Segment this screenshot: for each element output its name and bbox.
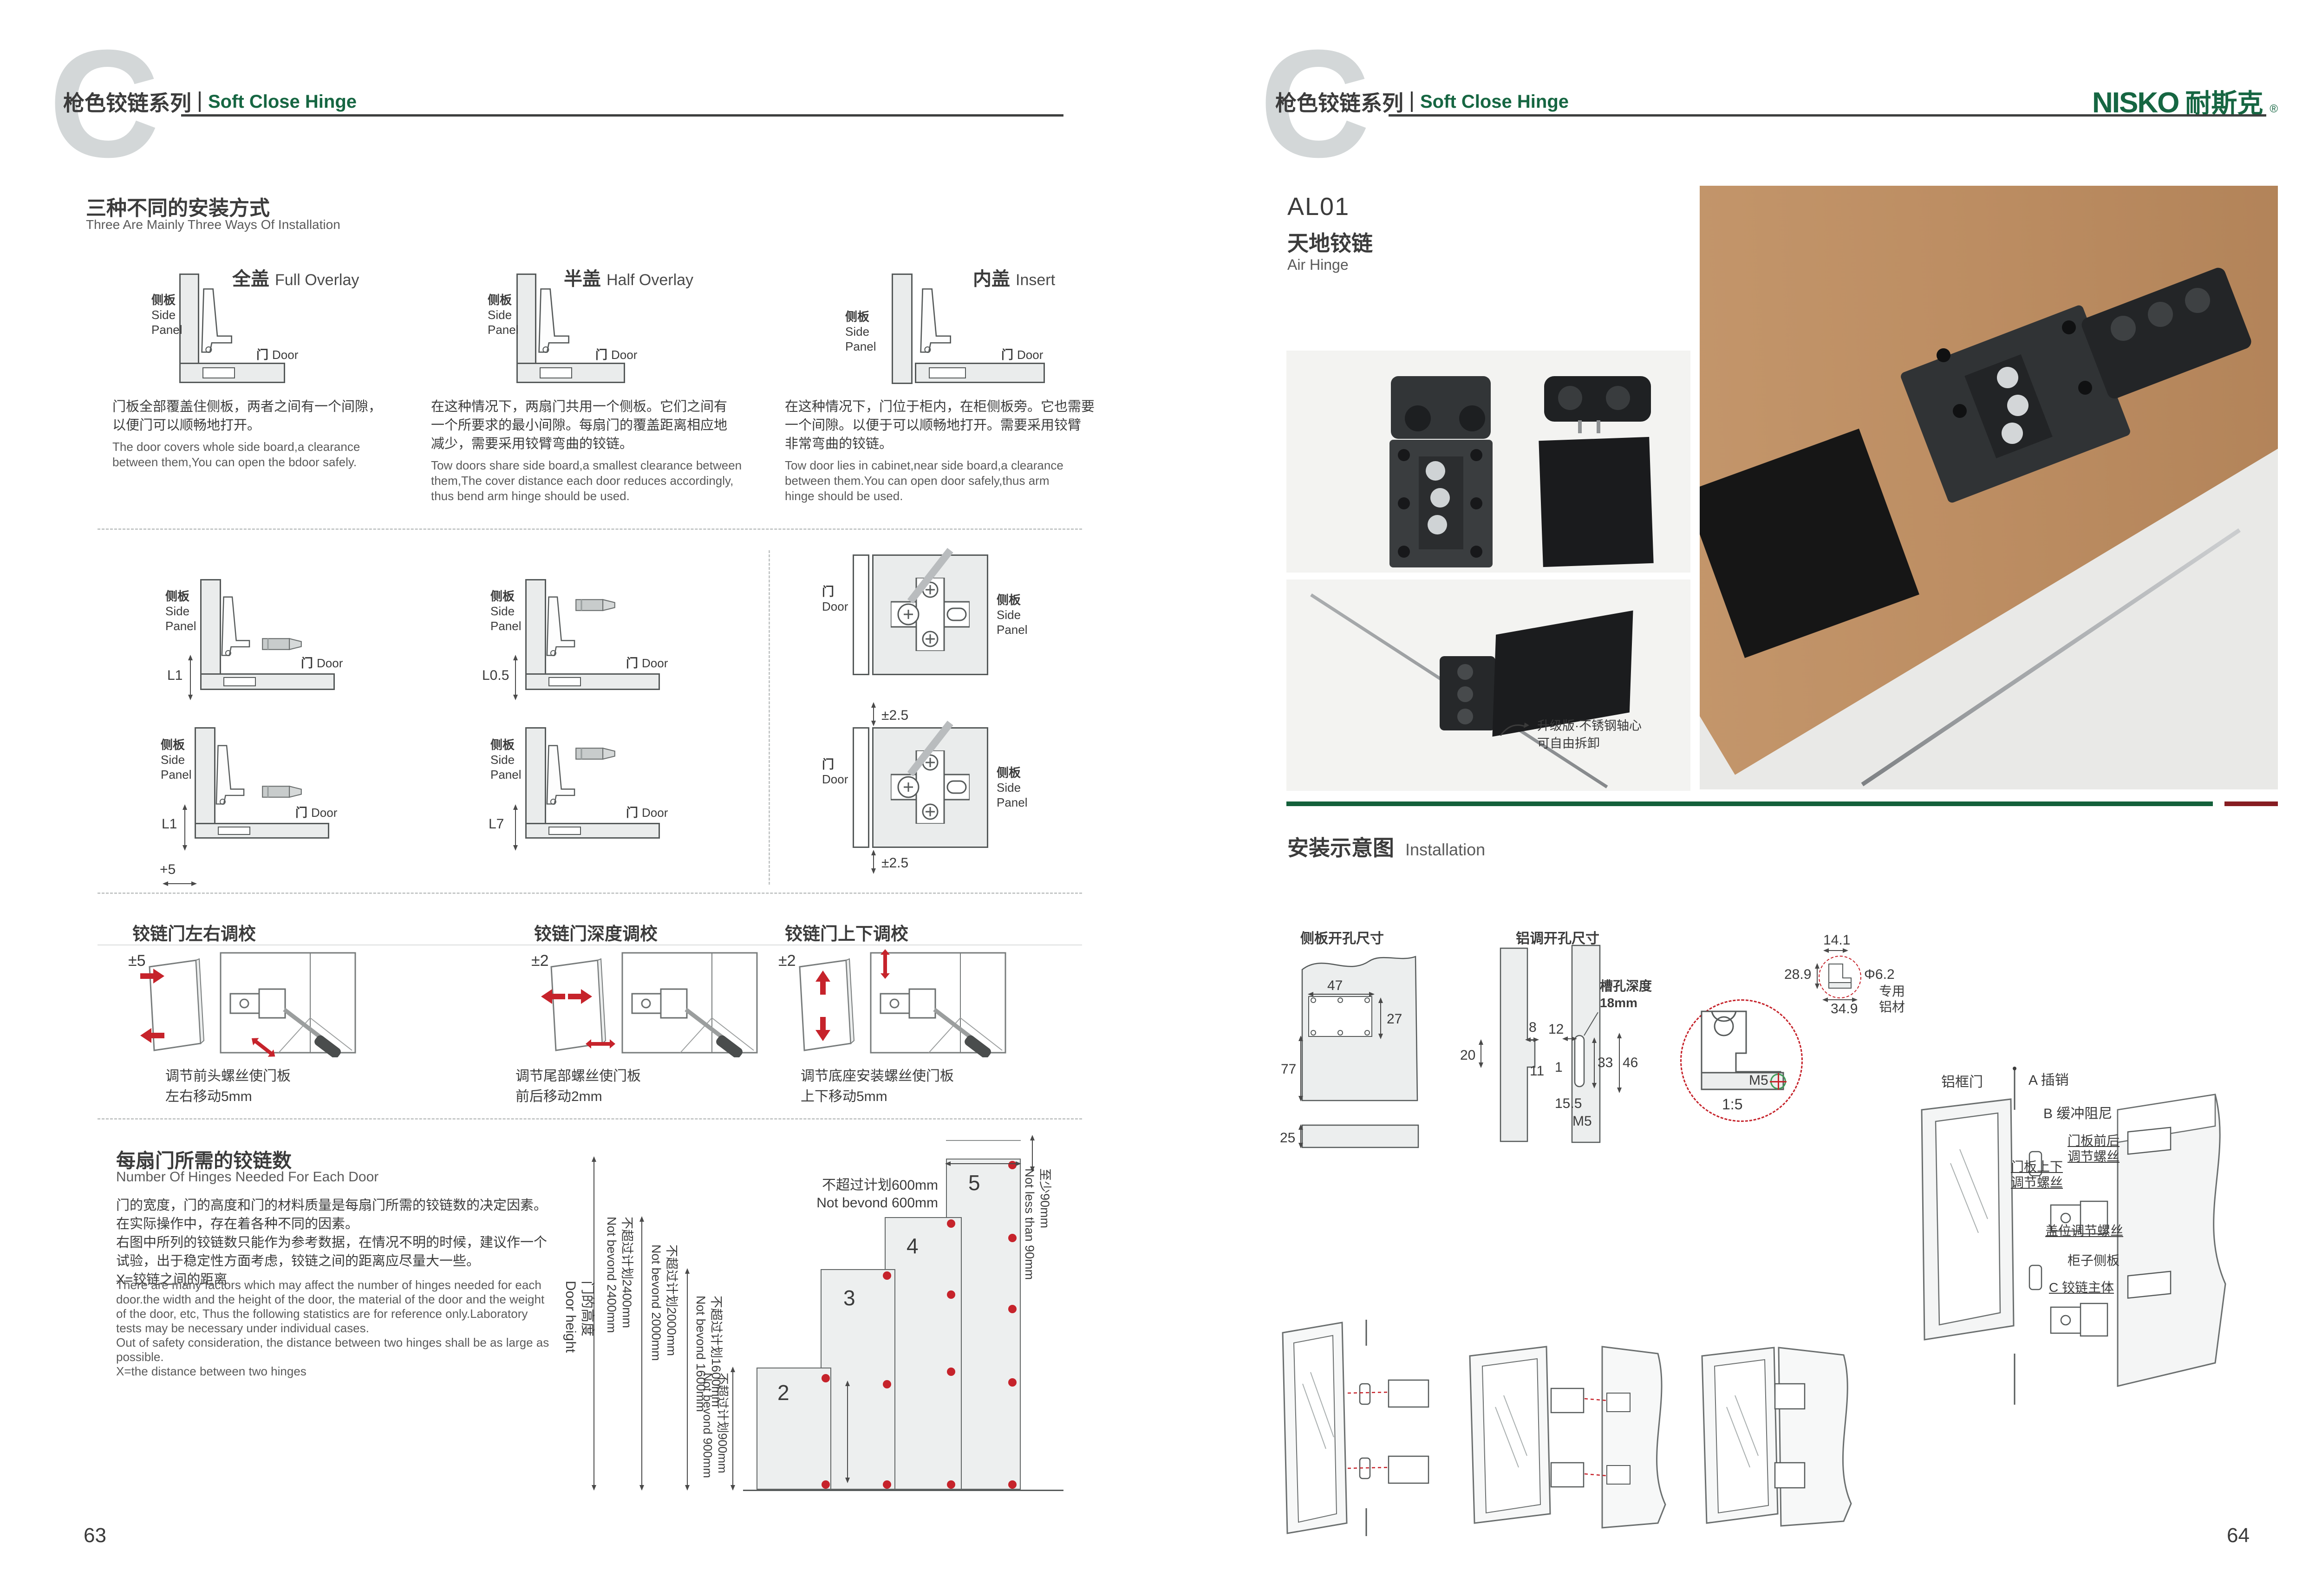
door-label: 门 Door <box>301 656 343 671</box>
dim-arrow-600 <box>946 1163 1020 1164</box>
adjustment-caption-0: 调节前头螺丝使门板 左右移动5mm <box>165 1066 291 1107</box>
hinge-dot <box>1008 1234 1017 1242</box>
door-en: Door <box>642 656 668 671</box>
door-label: 门 Door <box>295 805 337 820</box>
way-name-cn: 内盖 <box>973 264 1010 291</box>
alu-profile-label: 专用 铝材 <box>1879 984 1905 1015</box>
dim-46: 46 <box>1623 1055 1638 1071</box>
dim-8: 8 <box>1529 1020 1537 1036</box>
side-panel-label: 侧板 Side Panel <box>997 765 1028 810</box>
door-label: 门 Door <box>626 805 668 820</box>
door-label: 门 Door <box>626 656 668 671</box>
series-header-right: 枪色铰链系列 Soft Close Hinge <box>1275 86 1569 117</box>
callout-frame-door: 铝框门 <box>1941 1075 1983 1090</box>
side-panel-cn: 侧板 <box>488 293 519 307</box>
dim-pm25-bottom: ±2.5 <box>881 855 908 871</box>
door-cn: 门 <box>626 656 638 671</box>
clearance-dim-l7: L7 <box>489 816 504 832</box>
adjustment-title-1: 铰链门深度调校 <box>534 919 658 945</box>
dim-20: 20 <box>1460 1048 1475 1063</box>
side-panel-en1: Side <box>997 780 1028 795</box>
install-ways-title-cn: 三种不同的安装方式 <box>86 191 270 221</box>
way-desc-en-0: The door covers whole side board,a clear… <box>112 439 360 470</box>
series-header-left: 枪色铰链系列 Soft Close Hinge <box>63 86 357 117</box>
dim-arrow <box>1823 999 1857 1000</box>
callout-c-body: C 铰链主体 <box>2049 1280 2114 1296</box>
hinge-cup-notch <box>202 367 235 378</box>
hinge-count-desc-cn: 门的宽度，门的高度和门的材料质量是每扇门所需的铰链数的决定因素。 在实际操作中，… <box>116 1196 547 1289</box>
door-en: Door <box>1017 347 1043 362</box>
separator-dashed-1 <box>98 528 1082 530</box>
pivot-pin <box>1578 420 1582 433</box>
separator-dashed-vertical <box>769 550 770 885</box>
dim-m5-profile: M5 <box>1749 1073 1768 1088</box>
dim-27: 27 <box>1387 1011 1402 1027</box>
side-panel-label: 侧板 Side Panel <box>488 293 519 337</box>
dim-arrow <box>1594 1038 1595 1088</box>
door-en: Door <box>611 347 637 362</box>
header-divider-bar <box>199 91 201 112</box>
side-panel-en1: Side <box>488 307 519 322</box>
dim-m5: M5 <box>1572 1114 1592 1129</box>
pivot-pin <box>1597 420 1600 433</box>
side-panel-label: 侧板 Side Panel <box>161 737 192 782</box>
side-panel-en2: Panel <box>490 767 522 782</box>
way-name-en: Full Overlay <box>275 271 359 289</box>
adjustment-diagram-depth <box>541 948 764 1057</box>
side-panel-cn: 侧板 <box>490 589 522 604</box>
pivot-hole <box>1606 386 1630 410</box>
pivot-hole <box>1558 386 1582 410</box>
plate-hole <box>1470 546 1482 558</box>
adjustment-diagram-up-down <box>789 948 1012 1057</box>
door-label: 门 Door <box>256 347 298 362</box>
plate-hole <box>1470 449 1482 461</box>
side-panel-cn: 侧板 <box>161 737 192 752</box>
side-panel-en1: Side <box>845 324 876 339</box>
side-panel-label: 侧板 Side Panel <box>151 293 183 337</box>
way-desc-cn-2: 在这种情况下，门位于柜内，在柜侧板旁。它也需要 一个间隙。以便于可以顺畅地打开。… <box>785 397 1095 453</box>
dim-47: 47 <box>1327 978 1343 994</box>
side-panel-label: 侧板 Side Panel <box>997 593 1028 637</box>
bar-count-2: 2 <box>777 1380 789 1405</box>
axis-h2000: 不超过计划2000mm Not bevond 2000mm <box>648 1244 679 1361</box>
side-panel-label: 侧板 Side Panel <box>490 589 522 633</box>
hinge-dot <box>947 1290 955 1299</box>
clearance-dim-arrow <box>515 656 516 699</box>
hinge-cup-notch <box>223 677 256 686</box>
screw <box>1997 367 2018 388</box>
chart-top-tick <box>946 1140 1021 1141</box>
chart-bar-2 <box>757 1368 831 1490</box>
adjustment-caption-2: 调节底座安装螺丝使门板 上下移动5mm <box>801 1066 954 1107</box>
dim-33: 33 <box>1598 1055 1613 1071</box>
light-rule <box>98 945 1082 945</box>
callout-overlay-screw: 盖位调节螺丝 <box>2045 1223 2123 1239</box>
door-en: Door <box>822 599 848 614</box>
side-panel-en1: Side <box>490 604 522 619</box>
side-panel-en2: Panel <box>997 622 1028 637</box>
screw <box>1426 461 1445 481</box>
header-divider-bar <box>1411 91 1413 112</box>
chart-bar-4 <box>885 1217 962 1490</box>
installation-title: 安装示意图 Installation <box>1287 831 1485 862</box>
hinge-cross-section <box>542 584 577 671</box>
dim-pm25-top: ±2.5 <box>881 708 908 723</box>
door-shape <box>195 823 329 839</box>
door-en: Door <box>311 805 337 820</box>
door-en: Door <box>272 347 298 362</box>
m5-target-icon <box>1770 1074 1786 1089</box>
installation-title-en: Installation <box>1405 840 1485 860</box>
profile-mini-drawing <box>1827 962 1853 991</box>
side-panel-cn: 侧板 <box>165 589 196 604</box>
door-cn: 门 <box>822 757 848 772</box>
hinge-cup-notch <box>548 677 581 686</box>
dim-arrow <box>1563 1038 1576 1039</box>
screw-bit-icon <box>261 785 303 799</box>
header-rule-right <box>1389 114 2266 117</box>
dim-77: 77 <box>1281 1062 1296 1077</box>
dim-arrow-2000 <box>641 1217 642 1490</box>
door-cn: 门 <box>626 805 638 820</box>
side-panel-en1: Side <box>161 752 192 767</box>
logo-registered-mark: ® <box>2270 103 2278 116</box>
adjust-dim-arrow <box>873 851 874 873</box>
hinge-dot <box>822 1374 830 1382</box>
install-way-title-1: 半盖 Half Overlay <box>564 264 693 291</box>
side-panel-en2: Panel <box>165 619 196 633</box>
axis-w600: 不超过计划600mm Not bevond 600mm <box>808 1177 938 1212</box>
dim-arrow-x-distance <box>847 1381 848 1482</box>
door-cn: 门 <box>1001 347 1013 362</box>
screw <box>1430 488 1450 508</box>
side-panel-en2: Panel <box>488 322 519 337</box>
alu-frame-drilling-drawing <box>1484 943 1637 1149</box>
hinge-count-desc-en: There are many factors which may affect … <box>116 1278 549 1379</box>
adjustment-caption-1: 调节尾部螺丝使门板 前后移动2mm <box>515 1066 641 1107</box>
side-panel-cn: 侧板 <box>997 593 1028 607</box>
callout-fb-screw: 门板前后 调节螺丝 <box>2068 1133 2120 1165</box>
page-number-right: 64 <box>2227 1524 2250 1547</box>
dim-arrow <box>1824 950 1847 951</box>
side-panel-cn: 侧板 <box>845 309 876 324</box>
way-name-en: Half Overlay <box>607 271 693 289</box>
dim-25: 25 <box>1280 1130 1295 1146</box>
door-cn: 门 <box>822 584 848 599</box>
hinge-dot <box>822 1480 830 1489</box>
screw-bit-icon <box>574 598 616 612</box>
door-cn: 门 <box>256 347 268 362</box>
plate-hole <box>1398 546 1410 558</box>
dim-arrow <box>1619 1034 1620 1092</box>
adjustment-diagram-left-right <box>139 948 362 1057</box>
series-title-en: Soft Close Hinge <box>1420 91 1569 112</box>
product-name-cn: 天地铰链 <box>1287 227 1373 257</box>
side-panel-cn: 侧板 <box>151 293 183 307</box>
clearance-dim-arrow <box>190 656 191 699</box>
photo-annotation: 升级版·不锈钢轴心 可自由拆卸 <box>1537 717 1642 752</box>
dim-1: 1 <box>1555 1060 1563 1075</box>
dim-arrow-1600 <box>687 1269 688 1490</box>
bar-count-5: 5 <box>968 1170 980 1195</box>
section-divider-green <box>1286 801 2213 806</box>
hinge-cross-section <box>534 277 571 367</box>
dim-arrow <box>1817 964 1818 988</box>
door-label: 门 Door <box>822 584 848 614</box>
bar-count-3: 3 <box>843 1285 855 1310</box>
product-code: AL01 <box>1287 192 1350 221</box>
product-photo-assembled: 升级版·不锈钢轴心 可自由拆卸 <box>1286 580 1690 791</box>
install-way-title-2: 内盖 Insert <box>973 264 1055 291</box>
plate-hole <box>1398 449 1410 461</box>
dim-28-9: 28.9 <box>1784 967 1811 983</box>
door-cn: 门 <box>301 656 313 671</box>
side-panel-label: 侧板 Side Panel <box>845 309 876 354</box>
detail-scale-label: 1:5 <box>1722 1096 1742 1113</box>
hinge-cup-notch <box>218 827 250 835</box>
hinge-cup-notch <box>929 367 966 378</box>
side-hole-title: 侧板开孔尺寸 <box>1300 927 1384 947</box>
axis-min90: 至少90mm Not less than 90mm <box>1022 1168 1052 1280</box>
screw-bit-icon <box>261 637 303 651</box>
side-panel-en2: Panel <box>845 339 876 354</box>
axis-h900: 不超过计划900mm Not bevond 900mm <box>700 1373 730 1478</box>
assembly-step-mounted <box>1695 1328 1895 1532</box>
side-panel-en2: Panel <box>997 795 1028 810</box>
series-title-cn: 枪色铰链系列 <box>1275 86 1403 117</box>
dim-arrow <box>1481 1040 1481 1067</box>
way-name-cn: 全盖 <box>232 264 269 291</box>
hinge-dot <box>947 1480 955 1489</box>
dim-arrow <box>1300 1125 1301 1147</box>
slot-depth-label: 槽孔深度 18mm <box>1600 978 1652 1011</box>
separator-dashed-3 <box>98 1118 1082 1120</box>
way-desc-en-2: Tow door lies in cabinet,near side board… <box>785 458 1063 504</box>
cover-pad <box>1539 437 1653 567</box>
hinge-cross-section <box>916 277 953 367</box>
adjust-dim-arrow <box>873 703 874 725</box>
plate-hole <box>2078 381 2092 395</box>
hinge-dot <box>1008 1378 1017 1387</box>
mounting-plate <box>891 578 970 651</box>
assembly-step-exploded <box>1277 1319 1454 1537</box>
door-en: Door <box>317 656 343 671</box>
separator-dashed-2 <box>98 892 1082 894</box>
axis-h2400: 不超过计划2400mm Not bevond 2400mm <box>604 1217 634 1333</box>
mounting-plate <box>891 750 970 824</box>
door-edge-shape <box>853 727 869 848</box>
hinge-dot <box>883 1480 891 1489</box>
door-cn: 门 <box>295 805 307 820</box>
clearance-dim-l05: L0.5 <box>482 668 509 684</box>
plate-hole <box>1937 348 1950 362</box>
product-photo-parts <box>1286 351 1690 573</box>
leaf-hole <box>1457 709 1473 724</box>
dim-12: 12 <box>1548 1022 1564 1037</box>
target-cross-v <box>1778 1073 1779 1090</box>
clearance-dim-arrow <box>184 805 185 850</box>
install-way-title-0: 全盖 Full Overlay <box>232 264 359 291</box>
door-label: 门 Door <box>822 757 848 787</box>
side-panel-cn: 侧板 <box>997 765 1028 780</box>
chart-baseline <box>743 1490 1063 1491</box>
page-number-left: 63 <box>84 1524 106 1547</box>
door-shape <box>200 673 335 690</box>
installation-title-cn: 安装示意图 <box>1287 831 1394 862</box>
side-panel-drilling-drawing <box>1296 946 1426 1151</box>
product-name-en: Air Hinge <box>1287 256 1349 274</box>
hinge-count-title-en: Number Of Hinges Needed For Each Door <box>116 1169 378 1185</box>
side-panel-label: 侧板 Side Panel <box>490 737 522 782</box>
header-rule-left <box>181 114 1063 117</box>
callout-ud-screw: 门板上下 调节螺丝 <box>2011 1159 2063 1191</box>
side-panel-en2: Panel <box>490 619 522 633</box>
dim-dia-6-2: Φ6.2 <box>1864 967 1895 983</box>
assembly-step-align <box>1463 1328 1681 1532</box>
curved-arrow-icon <box>1498 718 1530 738</box>
way-name-en: Insert <box>1016 271 1055 289</box>
series-title-cn: 枪色铰链系列 <box>63 86 191 117</box>
way-desc-cn-0: 门板全部覆盖住侧板，两者之间有一个间隙， 以便门可以顺畅地打开。 <box>112 397 382 435</box>
bar-count-4: 4 <box>907 1233 919 1258</box>
leaf-hole <box>1457 664 1473 680</box>
dim-arrow-90 <box>1032 1136 1033 1171</box>
clearance-dim-l1b: L1 <box>162 816 177 832</box>
hinge-dot <box>883 1380 891 1388</box>
hinge-dot <box>1008 1480 1017 1489</box>
way-desc-cn-1: 在这种情况下，两扇门共用一个侧板。它们之间有 一个所要求的最小间隙。每扇门的覆盖… <box>431 397 727 453</box>
door-shape <box>525 823 660 839</box>
axis-door-height: 门的高度 Door height <box>562 1281 595 1353</box>
callout-a-pin: A 插销 <box>2028 1073 2069 1088</box>
hinge-cup-notch <box>540 367 572 378</box>
hinge-cross-section <box>217 584 252 671</box>
side-panel-shape <box>892 274 913 384</box>
adjustment-title-2: 铰链门上下调校 <box>785 919 908 945</box>
dim-11: 11 <box>1530 1063 1544 1079</box>
section-divider-red <box>2224 801 2278 806</box>
screw <box>2007 395 2028 416</box>
clearance-dim-l1: L1 <box>167 668 183 684</box>
dim-14-1: 14.1 <box>1823 932 1850 948</box>
hinge-cross-section <box>212 733 246 819</box>
callout-b-damper: B 缓冲阻尼 <box>2043 1106 2112 1122</box>
side-panel-en2: Panel <box>161 767 192 782</box>
door-en: Door <box>822 772 848 787</box>
dim-arrow <box>1300 1036 1301 1101</box>
door-shape <box>525 673 660 690</box>
hinge-cross-section <box>197 277 234 367</box>
hinge-flap-hole <box>1405 405 1431 431</box>
product-photo-hero <box>1700 186 2278 789</box>
plate-hole <box>1398 497 1410 509</box>
dim-arrow-900 <box>732 1368 733 1490</box>
adjustment-title-0: 铰链门左右调校 <box>132 919 256 945</box>
plate-hole <box>1470 497 1482 509</box>
side-panel-en1: Side <box>165 604 196 619</box>
clearance-dim-plus5: +5 <box>160 862 176 878</box>
hinge-dot <box>947 1368 955 1376</box>
callout-cabinet-side: 柜子侧板 <box>2068 1253 2120 1269</box>
way-desc-en-1: Tow doors share side board,a smallest cl… <box>431 458 742 504</box>
dim-34-9: 34.9 <box>1831 1001 1858 1017</box>
dim-arrow <box>1309 994 1374 995</box>
door-en: Door <box>642 805 668 820</box>
screw-bit-icon <box>574 747 616 761</box>
flap-hole <box>2111 316 2136 341</box>
plate-hole <box>2062 320 2076 334</box>
side-panel-label: 侧板 Side Panel <box>165 589 196 633</box>
screw <box>1428 515 1447 534</box>
clearance-dim-arrow <box>163 883 196 884</box>
door-cn: 门 <box>595 347 607 362</box>
screw <box>2002 423 2023 444</box>
side-panel-en1: Side <box>490 752 522 767</box>
series-title-en: Soft Close Hinge <box>208 91 357 112</box>
dim-arrow <box>1380 998 1381 1038</box>
hinge-cup-notch <box>548 827 581 835</box>
door-label: 门 Door <box>595 347 637 362</box>
flap-hole <box>2148 302 2173 327</box>
plate-hole <box>1953 404 1967 418</box>
chart-bar-3 <box>821 1269 895 1490</box>
dim-arrow <box>1526 1039 1538 1040</box>
leaf-hole <box>1457 686 1473 702</box>
hinge-flap-hole <box>1459 405 1485 431</box>
side-panel-en2: Panel <box>151 322 183 337</box>
dim-15-5: 15.5 <box>1555 1096 1582 1112</box>
side-panel-en1: Side <box>151 307 183 322</box>
door-label: 门 Door <box>1001 347 1043 362</box>
flap-hole <box>2185 288 2210 313</box>
door-edge-shape <box>853 554 869 675</box>
side-panel-cn: 侧板 <box>490 737 522 752</box>
side-panel-en1: Side <box>997 607 1028 622</box>
install-ways-title-en: Three Are Mainly Three Ways Of Installat… <box>86 217 340 232</box>
hinge-dot <box>1008 1305 1017 1313</box>
hinge-cross-section <box>542 733 577 819</box>
hinge-dot <box>883 1271 891 1280</box>
hinge-dot <box>947 1219 955 1228</box>
clearance-dim-arrow <box>515 805 516 850</box>
